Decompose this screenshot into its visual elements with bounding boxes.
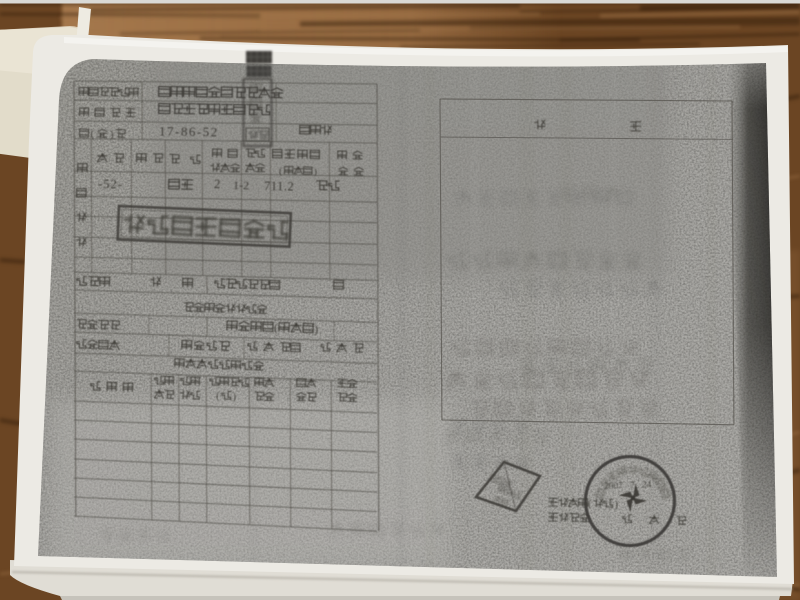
svg-text:): ) [110,129,114,140]
svg-text:(: ( [274,323,279,335]
svg-text:1-2: 1-2 [233,178,249,192]
svg-text:): ) [314,324,319,336]
svg-text:17-86-52: 17-86-52 [159,124,219,140]
svg-text:): ) [314,167,317,178]
svg-text:2007 7 24: 2007 7 24 [604,480,652,492]
svg-text:-52-: -52- [98,177,123,191]
svg-text:711.2: 711.2 [264,179,294,194]
svg-text:): ) [615,499,619,510]
svg-text:(: ( [279,166,282,177]
svg-text:2: 2 [214,177,221,191]
svg-text:): ) [232,392,236,403]
